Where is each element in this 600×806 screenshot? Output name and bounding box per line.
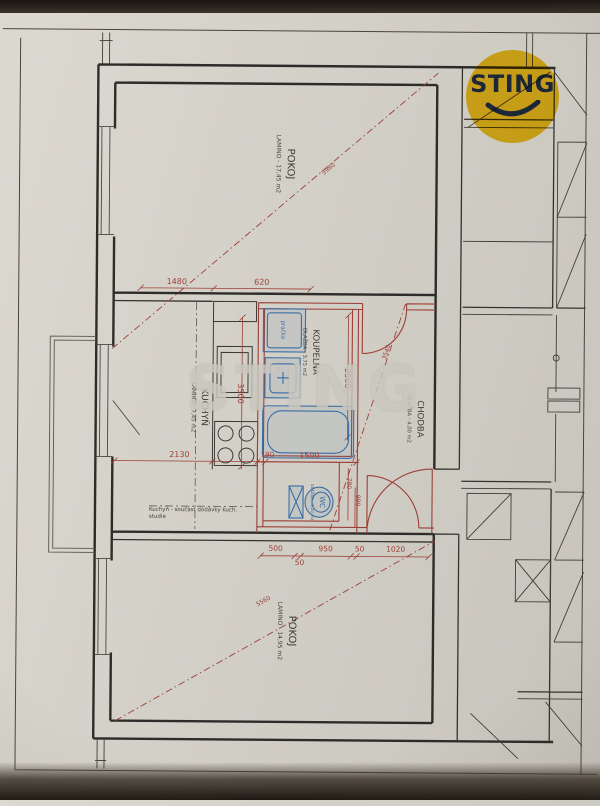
dim-mid-3: 1500 <box>299 451 319 460</box>
dim-bottom-3: 950 <box>318 544 333 553</box>
dim-mid-1: 2130 <box>169 450 189 459</box>
room-label-pokoj-top: POKOJ <box>285 149 296 180</box>
washer-label: pračka <box>279 321 286 340</box>
stove-burner-icon <box>218 448 233 463</box>
sting-watermark: STING <box>183 344 427 432</box>
dim-wc-2: 990 <box>354 495 361 507</box>
kitchen-note-line2: studie <box>149 514 167 520</box>
room-area-pokoj-top: LAMINO - 17,45 m2 <box>274 135 281 194</box>
sting-logo-text: STING <box>470 70 555 98</box>
balcony-outline <box>49 336 97 552</box>
kitchen-note-line1: Kuchyň - součást dodávky kuch. <box>149 506 237 514</box>
dim-top-1: 1480 <box>167 277 187 286</box>
dim-bottom-1: 500 <box>268 544 283 553</box>
photo-edge-bottom <box>0 762 600 800</box>
dim-bottom-5: 1020 <box>386 545 405 554</box>
dim-top-2: 620 <box>254 278 269 287</box>
room-area-pokoj-bottom: LAMINO - 14,95 m2 <box>276 602 283 661</box>
dim-wc-1: 780 <box>345 478 352 490</box>
sting-logo: STING <box>466 50 559 143</box>
room-label-wc: WC <box>318 496 326 508</box>
windows <box>94 126 142 654</box>
room-area-wc: DLAŽBA - 1,20 m2 <box>310 484 315 521</box>
smile-icon <box>481 100 545 128</box>
dim-mid-2: 190 <box>261 451 274 459</box>
room-label-pokoj-bottom: POKOJ <box>286 616 297 647</box>
dim-diagonal-3: 5560 <box>255 595 272 609</box>
dim-bottom-2: 50 <box>295 558 305 567</box>
photo-edge-top <box>0 0 600 13</box>
dim-bottom-4: 50 <box>355 544 365 553</box>
dim-diagonal-1: 5980 <box>321 161 337 176</box>
